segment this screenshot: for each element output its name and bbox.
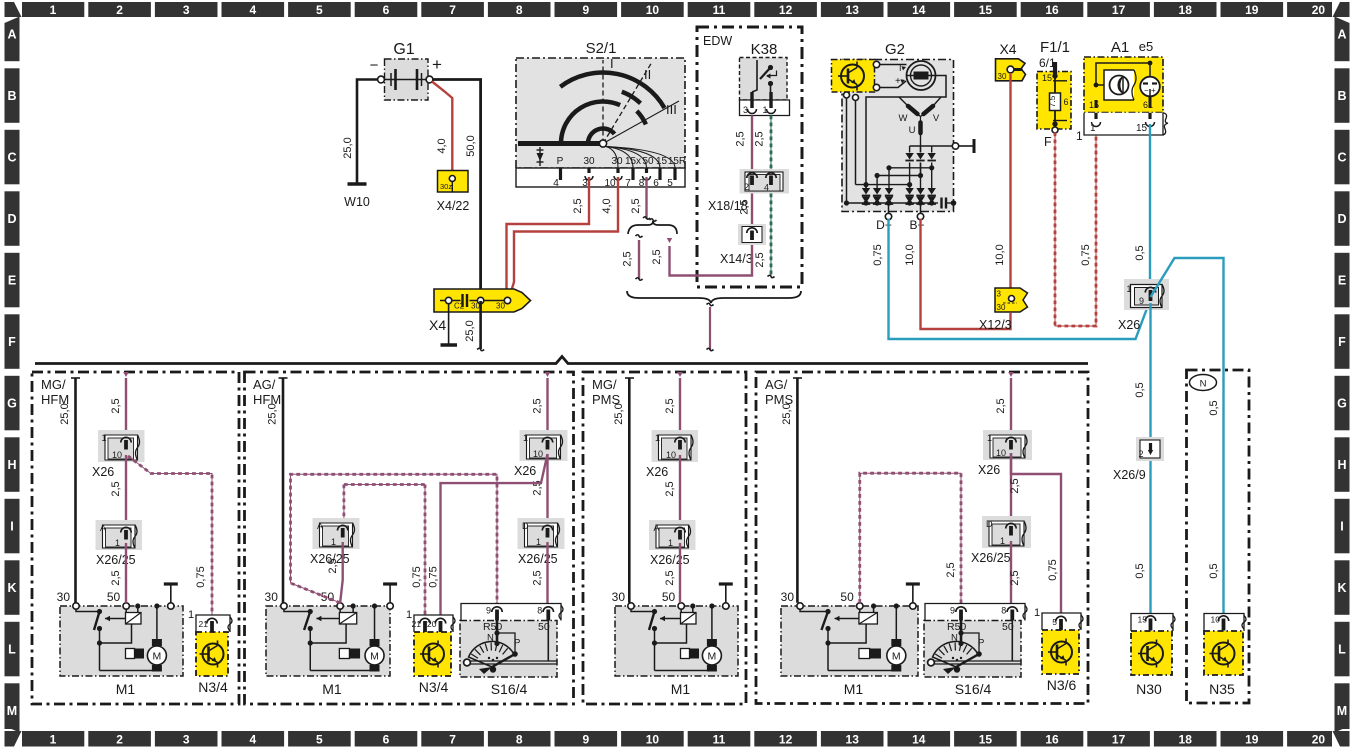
svg-text:2,5: 2,5: [735, 131, 747, 146]
svg-text:1: 1: [188, 609, 194, 621]
svg-text:I: I: [899, 63, 902, 73]
svg-text:2,5: 2,5: [622, 251, 634, 266]
svg-text:2: 2: [744, 182, 749, 192]
svg-text:3: 3: [183, 733, 190, 747]
svg-text:X26/25: X26/25: [518, 552, 558, 566]
svg-text:10,0: 10,0: [904, 244, 916, 265]
svg-text:X26/25: X26/25: [650, 553, 690, 567]
svg-text:5: 5: [316, 733, 323, 747]
svg-text:S2/1: S2/1: [586, 40, 617, 57]
svg-text:1: 1: [1034, 607, 1040, 619]
svg-text:A: A: [100, 523, 106, 533]
svg-text:X4/22: X4/22: [437, 199, 470, 213]
svg-text:50: 50: [662, 590, 676, 604]
svg-text:16: 16: [1045, 3, 1059, 17]
svg-text:8: 8: [1001, 606, 1006, 616]
svg-text:14: 14: [912, 733, 926, 747]
svg-text:4: 4: [249, 3, 256, 17]
svg-text:M: M: [370, 651, 379, 663]
svg-text:X26: X26: [514, 464, 536, 478]
svg-text:50: 50: [107, 590, 121, 604]
svg-text:+: +: [432, 55, 442, 74]
svg-text:1: 1: [523, 433, 528, 443]
svg-text:4,0: 4,0: [436, 138, 448, 153]
svg-text:MG/: MG/: [41, 377, 66, 392]
svg-text:I: I: [10, 520, 13, 534]
svg-text:2,5: 2,5: [1009, 478, 1021, 493]
svg-text:6: 6: [383, 733, 390, 747]
svg-text:1: 1: [1127, 284, 1132, 294]
svg-text:30: 30: [496, 302, 505, 311]
svg-text:11: 11: [713, 733, 726, 747]
svg-text:0,75: 0,75: [428, 566, 440, 587]
svg-text:8: 8: [516, 733, 523, 747]
svg-text:15: 15: [979, 733, 993, 747]
svg-text:30: 30: [611, 156, 623, 167]
svg-text:1: 1: [668, 538, 673, 548]
svg-text:5: 5: [667, 178, 673, 189]
svg-text:2,5: 2,5: [572, 198, 584, 213]
svg-text:2,5: 2,5: [327, 558, 339, 573]
svg-text:2,5: 2,5: [110, 570, 122, 585]
svg-text:18: 18: [1179, 3, 1193, 17]
svg-text:C: C: [1337, 151, 1346, 165]
svg-text:12: 12: [779, 733, 793, 747]
svg-text:7: 7: [449, 3, 456, 17]
svg-text:K38: K38: [751, 41, 778, 58]
svg-text:D: D: [986, 519, 993, 529]
svg-text:30: 30: [583, 156, 595, 167]
svg-text:16: 16: [1045, 733, 1059, 747]
svg-text:10: 10: [666, 450, 676, 460]
svg-text:X26/25: X26/25: [971, 551, 1011, 565]
svg-text:30: 30: [265, 590, 279, 604]
svg-text:1: 1: [1090, 123, 1096, 134]
svg-text:25,0: 25,0: [464, 320, 476, 341]
svg-text:AG/: AG/: [253, 377, 276, 392]
svg-text:B: B: [7, 89, 16, 103]
svg-text:M: M: [7, 704, 17, 718]
svg-text:M1: M1: [322, 681, 342, 697]
svg-text:17: 17: [1112, 3, 1126, 17]
svg-text:N3/4: N3/4: [198, 679, 228, 695]
svg-text:30z: 30z: [440, 182, 452, 191]
svg-text:2,5: 2,5: [651, 249, 663, 264]
svg-text:1: 1: [1000, 536, 1005, 546]
svg-text:G: G: [7, 397, 17, 411]
svg-text:+: +: [1151, 86, 1156, 95]
svg-text:1: 1: [50, 733, 57, 747]
svg-text:X4: X4: [999, 41, 1016, 57]
svg-text:III: III: [666, 102, 677, 117]
svg-text:10: 10: [112, 450, 122, 460]
svg-text:20: 20: [1312, 733, 1326, 747]
svg-text:15: 15: [1089, 100, 1099, 110]
svg-text:E: E: [1338, 274, 1346, 288]
svg-text:9: 9: [950, 606, 955, 616]
svg-text:N: N: [1200, 379, 1207, 390]
svg-text:30: 30: [998, 72, 1007, 81]
svg-text:1: 1: [655, 433, 660, 443]
svg-text:19: 19: [1245, 733, 1259, 747]
svg-text:2,5: 2,5: [945, 562, 957, 577]
svg-text:V: V: [933, 113, 940, 124]
svg-text:D: D: [522, 521, 529, 531]
svg-text:2,5: 2,5: [995, 398, 1007, 413]
svg-text:H: H: [1337, 458, 1346, 472]
svg-text:0,75: 0,75: [1080, 244, 1092, 265]
svg-text:M1: M1: [844, 681, 864, 697]
svg-text:9: 9: [582, 3, 589, 17]
svg-text:7: 7: [625, 178, 631, 189]
svg-text:M1: M1: [671, 681, 691, 697]
svg-text:N35: N35: [1209, 681, 1235, 697]
svg-text:U: U: [909, 125, 916, 136]
svg-text:61: 61: [1143, 100, 1153, 110]
svg-text:8: 8: [537, 606, 542, 616]
svg-text:18: 18: [1179, 733, 1193, 747]
svg-text:30: 30: [612, 590, 626, 604]
svg-text:15: 15: [979, 3, 993, 17]
svg-text:2,5: 2,5: [1009, 570, 1021, 585]
svg-text:9: 9: [486, 606, 491, 616]
svg-text:2,5: 2,5: [739, 199, 751, 214]
svg-text:11: 11: [713, 3, 726, 17]
svg-text:M: M: [153, 651, 162, 663]
svg-text:C: C: [7, 151, 16, 165]
svg-text:2,5: 2,5: [110, 481, 122, 496]
svg-text:H: H: [7, 458, 16, 472]
svg-text:5: 5: [316, 3, 323, 17]
svg-text:12: 12: [779, 3, 793, 17]
svg-text:15x: 15x: [625, 156, 641, 167]
svg-text:M: M: [892, 651, 901, 663]
svg-text:3: 3: [582, 178, 588, 189]
svg-text:0,5: 0,5: [1208, 563, 1220, 578]
svg-text:9: 9: [1139, 296, 1144, 306]
svg-text:3: 3: [743, 105, 748, 115]
svg-text:1: 1: [536, 537, 541, 547]
svg-text:50: 50: [321, 590, 335, 604]
svg-text:25,0: 25,0: [781, 403, 793, 424]
svg-text:F: F: [8, 335, 16, 349]
svg-text:A: A: [654, 523, 660, 533]
svg-text:2,5: 2,5: [630, 198, 642, 213]
svg-text:10: 10: [646, 733, 660, 747]
svg-text:D: D: [7, 212, 16, 226]
svg-text:X12/3: X12/3: [979, 318, 1012, 332]
svg-text:2: 2: [116, 733, 123, 747]
svg-text:L: L: [8, 643, 16, 657]
svg-text:10: 10: [996, 448, 1006, 458]
svg-text:G2: G2: [885, 41, 905, 58]
svg-text:25,0: 25,0: [59, 403, 71, 424]
svg-text:M: M: [1337, 704, 1347, 718]
svg-text:EDW: EDW: [703, 34, 732, 48]
svg-text:10: 10: [604, 178, 616, 189]
svg-text:7: 7: [449, 733, 456, 747]
svg-text:X4: X4: [429, 317, 446, 333]
svg-text:S16/4: S16/4: [491, 681, 528, 697]
svg-text:1: 1: [50, 3, 57, 17]
svg-text:15R: 15R: [668, 156, 686, 167]
svg-text:A: A: [7, 28, 16, 42]
svg-text:I: I: [610, 56, 614, 71]
svg-text:0,75: 0,75: [411, 566, 423, 587]
svg-text:10: 10: [646, 3, 660, 17]
svg-text:R50: R50: [947, 621, 966, 633]
svg-text:2,5: 2,5: [664, 398, 676, 413]
svg-text:C2: C2: [454, 302, 465, 311]
svg-text:K: K: [7, 581, 16, 595]
svg-text:8: 8: [516, 3, 523, 17]
svg-text:2,5: 2,5: [110, 398, 122, 413]
svg-text:14: 14: [912, 3, 926, 17]
svg-text:1: 1: [987, 433, 992, 443]
svg-text:A: A: [1337, 28, 1346, 42]
svg-text:N3/6: N3/6: [1047, 677, 1077, 693]
svg-text:R50: R50: [483, 621, 502, 633]
svg-text:1: 1: [115, 538, 120, 548]
svg-text:X14/3: X14/3: [720, 252, 753, 266]
svg-text:MG/: MG/: [592, 377, 617, 392]
svg-text:II: II: [644, 67, 651, 82]
svg-text:G: G: [1337, 397, 1347, 411]
svg-text:−: −: [370, 57, 379, 74]
svg-text:L: L: [1338, 643, 1346, 657]
svg-text:7.5: 7.5: [1047, 95, 1057, 107]
svg-text:2,5: 2,5: [754, 131, 766, 146]
svg-text:20: 20: [1312, 3, 1326, 17]
svg-text:P: P: [978, 638, 984, 649]
svg-text:F1/1: F1/1: [1040, 39, 1070, 56]
svg-text:e5: e5: [1139, 39, 1153, 54]
svg-text:2: 2: [1139, 449, 1144, 459]
svg-text:15: 15: [656, 156, 668, 167]
svg-text:2,5: 2,5: [532, 398, 544, 413]
svg-text:4: 4: [249, 733, 256, 747]
svg-text:30: 30: [57, 590, 71, 604]
svg-text:9: 9: [582, 733, 589, 747]
svg-text:10: 10: [533, 449, 543, 459]
svg-text:50: 50: [642, 156, 654, 167]
svg-text:2,5: 2,5: [664, 570, 676, 585]
svg-text:B+: B+: [909, 218, 924, 232]
svg-text:F: F: [1044, 135, 1052, 149]
svg-text:25,0: 25,0: [342, 137, 354, 158]
svg-text:13: 13: [846, 733, 860, 747]
svg-text:AG/: AG/: [765, 377, 788, 392]
svg-text:3: 3: [997, 290, 1002, 299]
svg-text:P: P: [514, 638, 520, 649]
svg-text:W: W: [899, 113, 908, 124]
svg-text:K: K: [1337, 581, 1346, 595]
svg-text:15: 15: [1136, 123, 1148, 134]
svg-text:+: +: [895, 76, 901, 87]
svg-text:4,0: 4,0: [601, 198, 613, 213]
svg-text:3: 3: [183, 3, 190, 17]
svg-text:G1: G1: [393, 41, 414, 58]
svg-text:P: P: [557, 156, 564, 167]
svg-text:50: 50: [840, 590, 854, 604]
svg-text:25,0: 25,0: [267, 403, 279, 424]
svg-text:A1: A1: [1111, 39, 1129, 56]
svg-text:X26: X26: [646, 465, 668, 479]
svg-text:W10: W10: [344, 195, 370, 209]
svg-text:N30: N30: [1136, 681, 1162, 697]
svg-text:10,0: 10,0: [994, 244, 1006, 265]
svg-text:S16/4: S16/4: [955, 681, 992, 697]
svg-text:M1: M1: [116, 681, 136, 697]
svg-text:8: 8: [639, 178, 645, 189]
svg-text:X26: X26: [92, 465, 114, 479]
svg-text:0,5: 0,5: [1134, 382, 1146, 397]
svg-text:4: 4: [764, 183, 769, 193]
svg-text:0,75: 0,75: [1047, 559, 1059, 580]
svg-text:2: 2: [116, 3, 123, 17]
svg-text:X26/9: X26/9: [1113, 468, 1146, 482]
svg-text:30: 30: [471, 302, 480, 311]
svg-text:1: 1: [763, 105, 768, 115]
svg-text:6: 6: [1064, 97, 1069, 107]
svg-text:0,75: 0,75: [195, 566, 207, 587]
svg-text:X26: X26: [978, 463, 1000, 477]
svg-text:X26: X26: [1118, 318, 1140, 332]
svg-text:30: 30: [781, 590, 795, 604]
svg-text:M: M: [708, 651, 717, 663]
svg-text:1: 1: [1076, 129, 1083, 143]
svg-text:2,5: 2,5: [532, 570, 544, 585]
svg-text:25,0: 25,0: [613, 403, 625, 424]
svg-text:15: 15: [1042, 73, 1052, 83]
svg-text:0,5: 0,5: [1134, 563, 1146, 578]
svg-text:E: E: [8, 274, 16, 288]
svg-text:6: 6: [383, 3, 390, 17]
svg-text:50,0: 50,0: [465, 135, 477, 156]
svg-text:2,5: 2,5: [664, 481, 676, 496]
svg-text:X26/25: X26/25: [96, 553, 136, 567]
svg-text:I: I: [1340, 520, 1343, 534]
svg-text:17: 17: [1112, 733, 1126, 747]
svg-text:A: A: [317, 521, 323, 531]
svg-text:F: F: [1338, 335, 1346, 349]
svg-text:0,75: 0,75: [872, 244, 884, 265]
svg-text:19: 19: [1245, 3, 1259, 17]
svg-text:−: −: [1144, 86, 1149, 95]
svg-text:6: 6: [653, 178, 659, 189]
svg-text:B: B: [1337, 89, 1346, 103]
svg-text:D: D: [1337, 212, 1346, 226]
svg-text:30: 30: [997, 303, 1006, 312]
svg-text:0,5: 0,5: [1134, 245, 1146, 260]
svg-text:N3/4: N3/4: [419, 679, 449, 695]
svg-text:13: 13: [846, 3, 860, 17]
svg-text:0,5: 0,5: [1208, 400, 1220, 415]
svg-text:1: 1: [331, 537, 336, 547]
svg-text:1: 1: [102, 433, 107, 443]
svg-text:2,5: 2,5: [754, 252, 766, 267]
svg-text:4: 4: [553, 178, 559, 189]
